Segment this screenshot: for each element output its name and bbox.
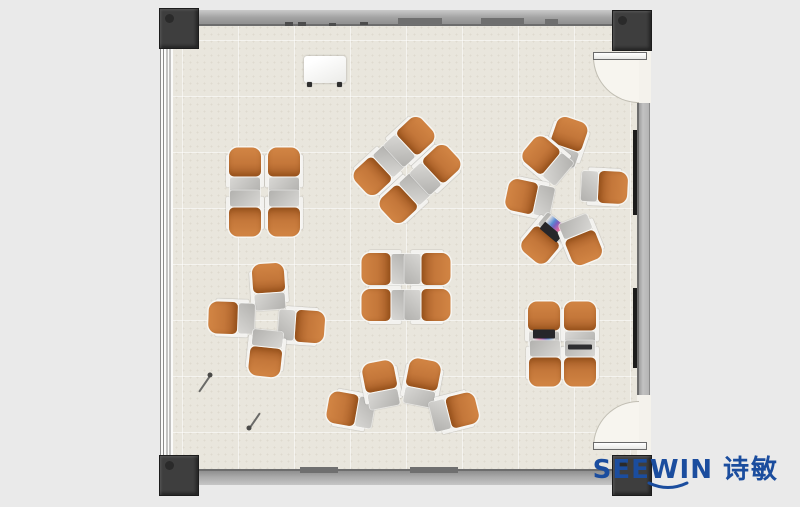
floor-stick-dot (208, 373, 213, 378)
chair (555, 211, 608, 269)
chair-seat (564, 358, 596, 387)
chair-seat (208, 301, 238, 334)
chair-seat (422, 289, 451, 321)
chair (358, 358, 404, 411)
brand-name-cn: 诗敏 (723, 449, 779, 486)
wall-fixture (329, 23, 336, 26)
chair (526, 340, 564, 387)
brand-wordmark: SEEWIN (593, 455, 713, 485)
wall-mounted-board (545, 19, 558, 24)
chair-seat (229, 148, 261, 177)
chair (362, 250, 409, 288)
wall-fixture (360, 22, 368, 25)
chair (265, 190, 303, 237)
floorplan-scene: SEEWIN 诗敏 (0, 0, 800, 507)
logo-smile-icon (647, 481, 689, 491)
chair-tablet (252, 329, 284, 348)
wall-rail (633, 130, 637, 215)
chair (245, 328, 288, 379)
floor-stick-dot (247, 426, 252, 431)
chair-seat (251, 262, 285, 293)
mobile-whiteboard (304, 56, 346, 83)
closed-laptop-icon (568, 345, 592, 350)
chair-seat (362, 289, 391, 321)
chair (265, 148, 303, 195)
wall-mounted-board (300, 467, 338, 473)
chair-tablet (405, 290, 421, 320)
chair-seat (528, 302, 560, 331)
chair-seat (362, 253, 391, 285)
chair-tablet (405, 254, 421, 284)
chair (226, 148, 264, 195)
wall-fixture (298, 22, 306, 26)
chair-tablet (530, 341, 560, 357)
floor-stick (198, 375, 211, 392)
chair-seat (598, 171, 629, 204)
chair-seat (422, 253, 451, 285)
chair (580, 167, 629, 207)
chair-seat (268, 148, 300, 177)
chair-seat (325, 390, 359, 427)
wall-rail (633, 288, 637, 368)
furniture-layer (0, 0, 800, 507)
chair (404, 250, 451, 288)
chair-seat (229, 208, 261, 237)
wall-mounted-board (410, 467, 458, 473)
chair (561, 340, 599, 387)
chair (404, 286, 451, 324)
chair-seat (529, 358, 561, 387)
caster (307, 82, 312, 87)
wall-mounted-board (481, 18, 524, 25)
caster (337, 82, 342, 87)
chair-seat (294, 310, 325, 344)
laptop-screen (533, 330, 555, 339)
chair (362, 286, 409, 324)
brand-logo: SEEWIN 诗敏 (593, 449, 779, 486)
chair-seat (405, 357, 442, 392)
chair-seat (564, 302, 596, 331)
wall-mounted-board (398, 18, 442, 25)
wall-fixture (285, 22, 293, 26)
chair-seat (268, 208, 300, 237)
chair-tablet (269, 191, 299, 207)
chair-tablet (581, 171, 599, 202)
chair (226, 190, 264, 237)
chair-seat (248, 346, 283, 378)
chair-tablet (230, 191, 260, 207)
